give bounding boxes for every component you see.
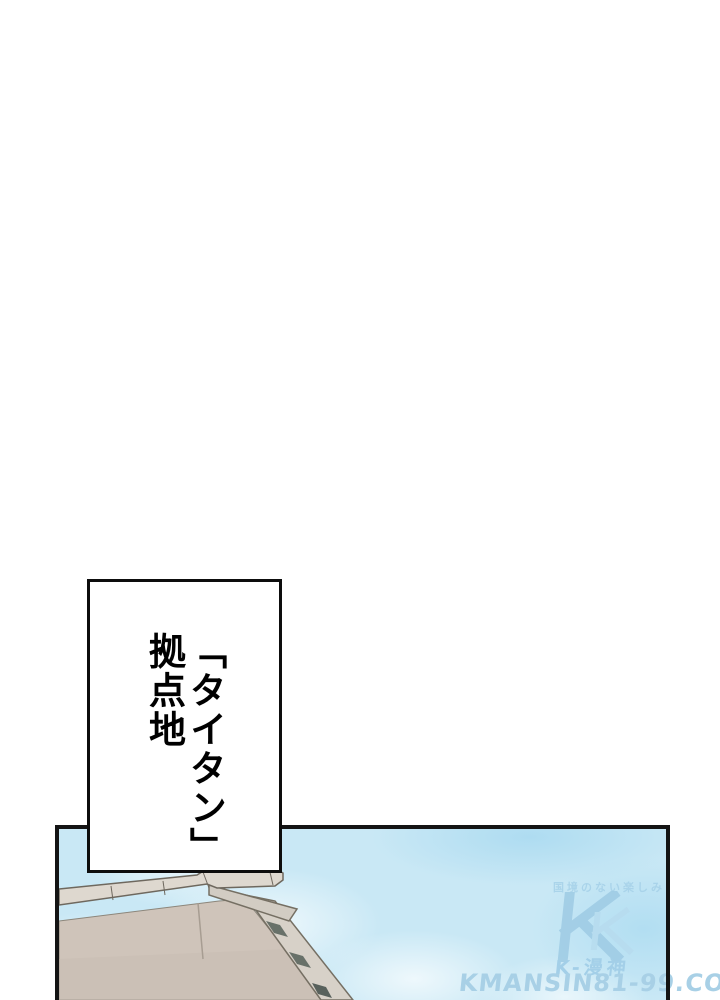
watermark-site-url: KMANSIN81-99.COM xyxy=(458,969,720,997)
caption-box: 「タイタン」 拠点地 xyxy=(87,579,282,873)
caption-text: 「タイタン」 拠点地 xyxy=(144,582,226,870)
manga-page: 「タイタン」 拠点地 国境のない xyxy=(0,0,720,1000)
